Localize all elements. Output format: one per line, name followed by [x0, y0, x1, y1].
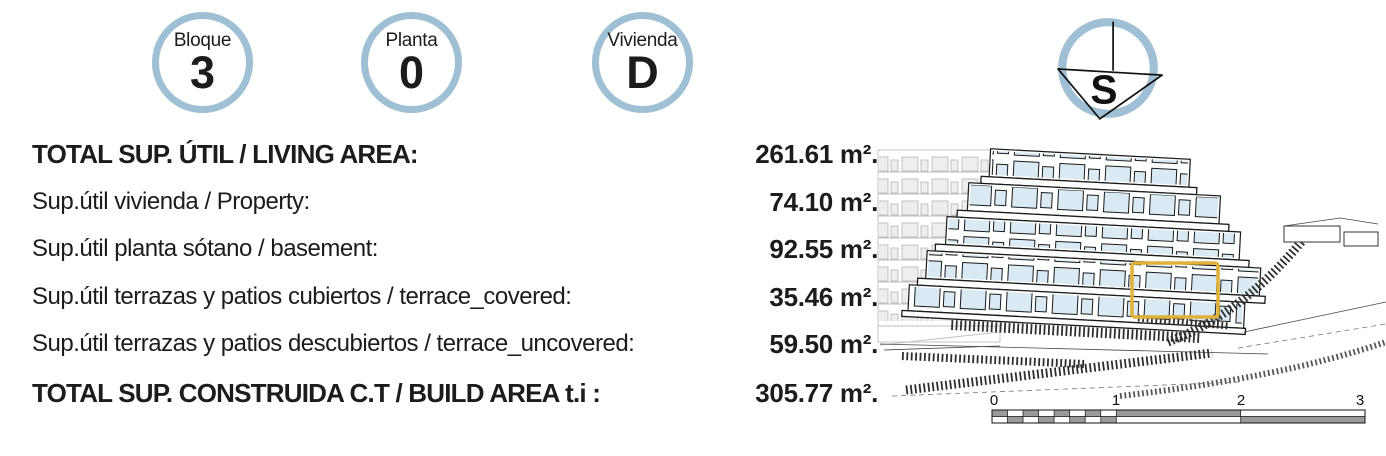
badge-planta: Planta 0: [361, 12, 462, 113]
area-row-terrace-uncovered: Sup.útil terrazas y patios descubiertos …: [32, 329, 878, 359]
area-row-terrace-covered: Sup.útil terrazas y patios cubiertos / t…: [32, 282, 878, 312]
scale-bar: 0 1 2 3: [986, 391, 1368, 427]
area-row-value: 35.46 m².: [769, 282, 878, 313]
area-row-label: Sup.útil terrazas y patios cubiertos / t…: [32, 283, 571, 311]
badge-bloque: Bloque 3: [152, 12, 253, 113]
area-row-property: Sup.útil vivienda / Property: 74.10 m².: [32, 187, 878, 217]
area-row-label: Sup.útil planta sótano / basement:: [32, 235, 378, 263]
area-row-value: 92.55 m².: [769, 234, 878, 265]
area-row-label: TOTAL SUP. ÚTIL / LIVING AREA:: [32, 139, 418, 170]
area-row-label: Sup.útil terrazas y patios descubiertos …: [32, 330, 634, 358]
area-row-value: 261.61 m².: [755, 139, 878, 170]
scale-tick-1: 1: [1112, 392, 1120, 409]
scale-segment-2-3: [1241, 417, 1365, 424]
area-row-label: TOTAL SUP. CONSTRUIDA C.T / BUILD AREA t…: [32, 378, 600, 409]
scale-tick-0: 0: [990, 392, 998, 409]
scale-tick-3: 3: [1356, 392, 1364, 409]
area-row-basement: Sup.útil planta sótano / basement: 92.55…: [32, 234, 878, 264]
badge-bloque-value: 3: [190, 52, 215, 95]
area-row-total-build: TOTAL SUP. CONSTRUIDA C.T / BUILD AREA t…: [32, 378, 878, 408]
badge-planta-value: 0: [399, 52, 424, 95]
badge-vivienda: Vivienda D: [592, 12, 693, 113]
compass-letter: S: [1090, 67, 1117, 113]
compass-south-icon: S: [1051, 11, 1165, 125]
scale-tick-2: 2: [1237, 392, 1245, 409]
scale-segment-1-2: [1116, 410, 1240, 417]
area-spec-sheet: Bloque 3 Planta 0 Vivienda D S TOTAL SUP…: [0, 0, 1386, 456]
area-row-total-living: TOTAL SUP. ÚTIL / LIVING AREA: 261.61 m²…: [32, 139, 878, 169]
area-row-value: 59.50 m².: [769, 329, 878, 360]
building-elevation-sketch: [868, 122, 1386, 400]
area-row-value: 74.10 m².: [769, 187, 878, 218]
badge-vivienda-value: D: [626, 52, 659, 95]
area-row-label: Sup.útil vivienda / Property:: [32, 188, 310, 216]
area-row-value: 305.77 m².: [755, 378, 878, 409]
